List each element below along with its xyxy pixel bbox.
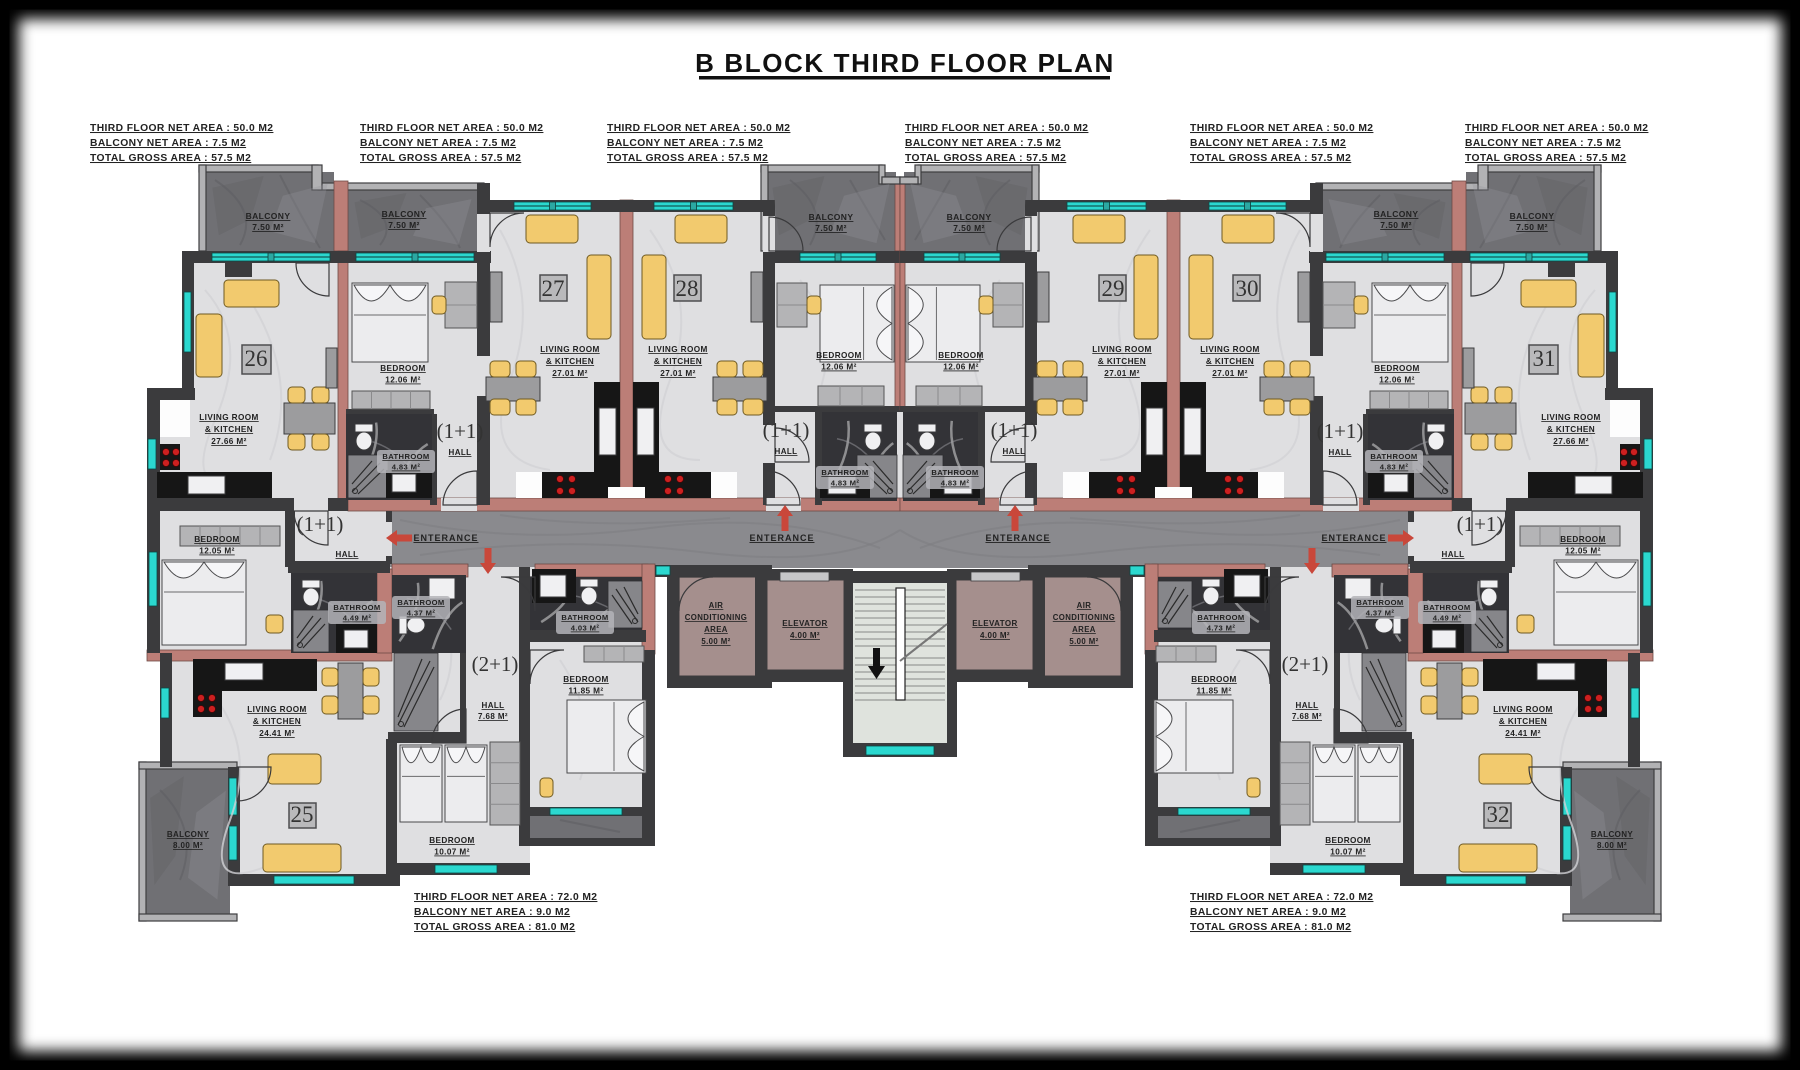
svg-text:BALCONY NET AREA : 7.5 M2: BALCONY NET AREA : 7.5 M2 [1190, 138, 1346, 149]
svg-text:BALCONY: BALCONY [382, 209, 427, 219]
svg-text:BALCONY: BALCONY [809, 212, 854, 222]
svg-text:(1+1): (1+1) [991, 418, 1038, 442]
svg-text:BEDROOM: BEDROOM [563, 675, 609, 684]
svg-text:HALL: HALL [1003, 447, 1026, 456]
svg-text:25: 25 [291, 802, 314, 827]
svg-text:TOTAL GROSS AREA : 57.5 M2: TOTAL GROSS AREA : 57.5 M2 [905, 153, 1066, 164]
svg-text:AREA: AREA [704, 625, 728, 634]
svg-text:(1+1): (1+1) [1317, 419, 1364, 443]
svg-text:HALL: HALL [449, 448, 472, 457]
svg-text:24.41 M²: 24.41 M² [1505, 729, 1541, 738]
svg-text:ELEVATOR: ELEVATOR [782, 619, 827, 628]
svg-text:ELEVATOR: ELEVATOR [972, 619, 1017, 628]
svg-text:LIVING ROOM: LIVING ROOM [1200, 345, 1259, 354]
svg-text:12.06 M²: 12.06 M² [385, 376, 421, 385]
svg-text:27.01 M²: 27.01 M² [1212, 369, 1248, 378]
svg-text:BALCONY: BALCONY [1510, 211, 1555, 221]
svg-text:& KITCHEN: & KITCHEN [654, 357, 702, 366]
svg-text:& KITCHEN: & KITCHEN [1547, 425, 1595, 434]
svg-text:HALL: HALL [336, 550, 359, 559]
svg-text:4.73 M²: 4.73 M² [1207, 624, 1236, 633]
svg-text:7.50 M²: 7.50 M² [953, 223, 985, 233]
svg-text:12.05 M²: 12.05 M² [1565, 547, 1601, 556]
svg-text:& KITCHEN: & KITCHEN [205, 425, 253, 434]
svg-text:AIR: AIR [709, 601, 724, 610]
svg-text:10.07 M²: 10.07 M² [1330, 848, 1366, 857]
svg-text:LIVING ROOM: LIVING ROOM [648, 345, 707, 354]
svg-text:BATHROOM: BATHROOM [561, 613, 608, 622]
svg-text:5.00 M²: 5.00 M² [1069, 637, 1098, 646]
svg-text:THIRD FLOOR NET AREA : 50.0 M2: THIRD FLOOR NET AREA : 50.0 M2 [905, 123, 1088, 134]
svg-text:THIRD FLOOR NET AREA : 72.0 M2: THIRD FLOOR NET AREA : 72.0 M2 [1190, 892, 1373, 903]
svg-text:30: 30 [1236, 276, 1259, 301]
svg-text:(1+1): (1+1) [437, 419, 484, 443]
svg-text:BALCONY NET AREA : 7.5 M2: BALCONY NET AREA : 7.5 M2 [905, 138, 1061, 149]
svg-text:& KITCHEN: & KITCHEN [1206, 357, 1254, 366]
svg-text:BALCONY: BALCONY [1374, 209, 1419, 219]
svg-text:BALCONY NET AREA : 7.5 M2: BALCONY NET AREA : 7.5 M2 [1465, 138, 1621, 149]
svg-text:7.68 M²: 7.68 M² [1292, 712, 1322, 721]
svg-text:4.37 M²: 4.37 M² [407, 609, 436, 618]
svg-text:BEDROOM: BEDROOM [1374, 364, 1420, 373]
svg-text:BALCONY: BALCONY [1591, 830, 1634, 839]
svg-text:8.00 M²: 8.00 M² [1597, 841, 1627, 850]
svg-text:BATHROOM: BATHROOM [397, 598, 444, 607]
svg-text:THIRD FLOOR NET AREA : 50.0 M2: THIRD FLOOR NET AREA : 50.0 M2 [607, 123, 790, 134]
svg-text:AREA: AREA [1072, 625, 1096, 634]
svg-text:4.49 M²: 4.49 M² [343, 614, 372, 623]
svg-text:HALL: HALL [1329, 448, 1352, 457]
svg-text:ENTERANCE: ENTERANCE [1321, 533, 1386, 543]
svg-text:BALCONY NET AREA : 9.0 M2: BALCONY NET AREA : 9.0 M2 [414, 907, 570, 918]
svg-text:28: 28 [676, 276, 699, 301]
svg-text:29: 29 [1102, 276, 1125, 301]
svg-text:BATHROOM: BATHROOM [931, 468, 978, 477]
svg-text:(1+1): (1+1) [763, 418, 810, 442]
svg-text:CONDITIONING: CONDITIONING [685, 613, 747, 622]
svg-text:BALCONY NET AREA : 7.5 M2: BALCONY NET AREA : 7.5 M2 [360, 138, 516, 149]
svg-text:(2+1): (2+1) [1282, 652, 1329, 676]
svg-text:BATHROOM: BATHROOM [1356, 598, 1403, 607]
svg-text:THIRD FLOOR NET AREA : 50.0 M2: THIRD FLOOR NET AREA : 50.0 M2 [360, 123, 543, 134]
svg-text:4.03 M²: 4.03 M² [571, 624, 600, 633]
svg-text:7.50 M²: 7.50 M² [252, 222, 284, 232]
svg-text:7.50 M²: 7.50 M² [388, 220, 420, 230]
svg-text:BATHROOM: BATHROOM [821, 468, 868, 477]
svg-text:27.66 M²: 27.66 M² [1553, 437, 1589, 446]
svg-text:LIVING ROOM: LIVING ROOM [540, 345, 599, 354]
svg-text:ENTERANCE: ENTERANCE [749, 533, 814, 543]
svg-text:BALCONY NET AREA : 7.5 M2: BALCONY NET AREA : 7.5 M2 [607, 138, 763, 149]
svg-text:11.85 M²: 11.85 M² [1196, 687, 1231, 696]
svg-text:ENTERANCE: ENTERANCE [985, 533, 1050, 543]
svg-text:7.68 M²: 7.68 M² [478, 712, 508, 721]
svg-text:12.06 M²: 12.06 M² [943, 363, 979, 372]
svg-text:27.01 M²: 27.01 M² [552, 369, 588, 378]
svg-text:27.66 M²: 27.66 M² [211, 437, 247, 446]
svg-text:10.07 M²: 10.07 M² [434, 848, 470, 857]
svg-text:THIRD FLOOR NET AREA : 50.0 M2: THIRD FLOOR NET AREA : 50.0 M2 [1190, 123, 1373, 134]
svg-text:4.00 M²: 4.00 M² [980, 631, 1010, 640]
svg-text:BALCONY: BALCONY [167, 830, 210, 839]
svg-text:12.06 M²: 12.06 M² [821, 363, 857, 372]
svg-text:& KITCHEN: & KITCHEN [546, 357, 594, 366]
svg-text:HALL: HALL [482, 701, 505, 710]
svg-text:26: 26 [245, 346, 268, 371]
svg-text:B BLOCK THIRD FLOOR PLAN: B BLOCK THIRD FLOOR PLAN [695, 48, 1115, 78]
svg-text:4.83 M²: 4.83 M² [392, 463, 421, 472]
svg-text:BEDROOM: BEDROOM [194, 535, 240, 544]
svg-text:TOTAL GROSS AREA : 57.5 M2: TOTAL GROSS AREA : 57.5 M2 [90, 153, 251, 164]
svg-text:(1+1): (1+1) [1457, 512, 1504, 536]
svg-text:TOTAL GROSS AREA : 81.0 M2: TOTAL GROSS AREA : 81.0 M2 [414, 922, 575, 933]
svg-text:& KITCHEN: & KITCHEN [1098, 357, 1146, 366]
svg-text:BEDROOM: BEDROOM [1560, 535, 1606, 544]
svg-text:TOTAL GROSS AREA : 57.5 M2: TOTAL GROSS AREA : 57.5 M2 [360, 153, 521, 164]
svg-text:AIR: AIR [1077, 601, 1092, 610]
svg-text:11.85 M²: 11.85 M² [568, 687, 603, 696]
svg-text:LIVING ROOM: LIVING ROOM [1493, 705, 1552, 714]
svg-text:BEDROOM: BEDROOM [429, 836, 475, 845]
svg-text:LIVING ROOM: LIVING ROOM [1541, 413, 1600, 422]
svg-text:BEDROOM: BEDROOM [380, 364, 426, 373]
svg-text:12.06 M²: 12.06 M² [1379, 376, 1415, 385]
svg-text:BEDROOM: BEDROOM [1325, 836, 1371, 845]
svg-text:TOTAL GROSS AREA : 57.5 M2: TOTAL GROSS AREA : 57.5 M2 [1190, 153, 1351, 164]
svg-text:7.50 M²: 7.50 M² [1516, 222, 1548, 232]
svg-text:4.00 M²: 4.00 M² [790, 631, 820, 640]
svg-text:BATHROOM: BATHROOM [1370, 452, 1417, 461]
svg-text:THIRD FLOOR NET AREA : 50.0 M2: THIRD FLOOR NET AREA : 50.0 M2 [1465, 123, 1648, 134]
svg-text:LIVING ROOM: LIVING ROOM [247, 705, 306, 714]
svg-text:32: 32 [1487, 802, 1510, 827]
svg-text:8.00 M²: 8.00 M² [173, 841, 203, 850]
svg-text:& KITCHEN: & KITCHEN [1499, 717, 1547, 726]
svg-text:HALL: HALL [1296, 701, 1319, 710]
svg-text:24.41 M²: 24.41 M² [259, 729, 295, 738]
svg-text:4.37 M²: 4.37 M² [1366, 609, 1395, 618]
svg-text:4.49 M²: 4.49 M² [1433, 614, 1462, 623]
svg-text:CONDITIONING: CONDITIONING [1053, 613, 1115, 622]
svg-text:THIRD FLOOR NET AREA : 72.0 M2: THIRD FLOOR NET AREA : 72.0 M2 [414, 892, 597, 903]
svg-text:LIVING ROOM: LIVING ROOM [1092, 345, 1151, 354]
svg-text:TOTAL GROSS AREA : 81.0 M2: TOTAL GROSS AREA : 81.0 M2 [1190, 922, 1351, 933]
svg-text:BEDROOM: BEDROOM [816, 351, 862, 360]
svg-text:(2+1): (2+1) [472, 652, 519, 676]
svg-text:(1+1): (1+1) [297, 512, 344, 536]
svg-text:BATHROOM: BATHROOM [1423, 603, 1470, 612]
svg-text:7.50 M²: 7.50 M² [1380, 220, 1412, 230]
svg-text:27.01 M²: 27.01 M² [660, 369, 696, 378]
svg-text:BEDROOM: BEDROOM [938, 351, 984, 360]
svg-text:& KITCHEN: & KITCHEN [253, 717, 301, 726]
svg-text:HALL: HALL [1442, 550, 1465, 559]
svg-text:BALCONY: BALCONY [947, 212, 992, 222]
svg-text:HALL: HALL [775, 447, 798, 456]
svg-text:7.50 M²: 7.50 M² [815, 223, 847, 233]
svg-text:BALCONY NET AREA : 7.5 M2: BALCONY NET AREA : 7.5 M2 [90, 138, 246, 149]
svg-text:4.83 M²: 4.83 M² [831, 479, 860, 488]
svg-text:BATHROOM: BATHROOM [333, 603, 380, 612]
svg-text:BATHROOM: BATHROOM [382, 452, 429, 461]
svg-text:4.83 M²: 4.83 M² [941, 479, 970, 488]
svg-text:BEDROOM: BEDROOM [1191, 675, 1237, 684]
svg-text:THIRD FLOOR NET AREA : 50.0 M2: THIRD FLOOR NET AREA : 50.0 M2 [90, 123, 273, 134]
svg-text:BALCONY NET AREA : 9.0 M2: BALCONY NET AREA : 9.0 M2 [1190, 907, 1346, 918]
svg-text:4.83 M²: 4.83 M² [1380, 463, 1409, 472]
svg-text:12.05 M²: 12.05 M² [199, 547, 235, 556]
svg-text:27.01 M²: 27.01 M² [1104, 369, 1140, 378]
svg-text:BATHROOM: BATHROOM [1197, 613, 1244, 622]
svg-text:27: 27 [542, 276, 565, 301]
svg-text:31: 31 [1533, 346, 1556, 371]
svg-text:TOTAL GROSS AREA : 57.5 M2: TOTAL GROSS AREA : 57.5 M2 [607, 153, 768, 164]
svg-text:TOTAL GROSS AREA : 57.5 M2: TOTAL GROSS AREA : 57.5 M2 [1465, 153, 1626, 164]
svg-text:5.00 M²: 5.00 M² [701, 637, 730, 646]
svg-text:BALCONY: BALCONY [246, 211, 291, 221]
svg-text:LIVING ROOM: LIVING ROOM [199, 413, 258, 422]
svg-text:ENTERANCE: ENTERANCE [413, 533, 478, 543]
